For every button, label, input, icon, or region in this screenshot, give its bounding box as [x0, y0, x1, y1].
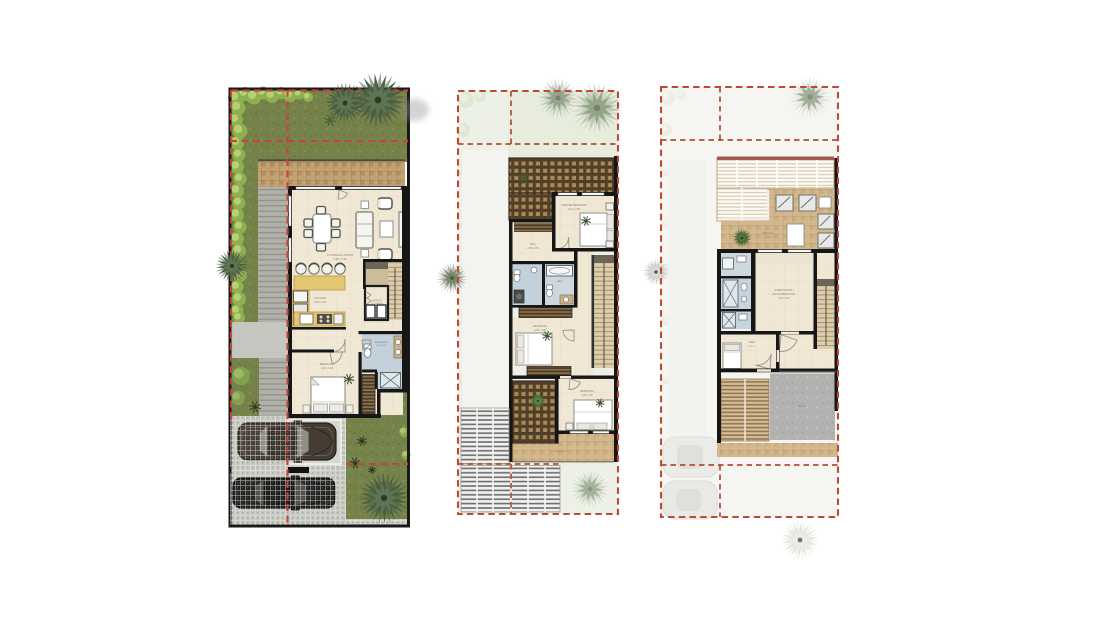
- svg-text:3.20 x 3.00: 3.20 x 3.00: [581, 395, 593, 397]
- svg-text:HALL: HALL: [530, 243, 537, 246]
- svg-text:BATHROOM: BATHROOM: [375, 341, 388, 344]
- svg-text:KITCHEN: KITCHEN: [314, 296, 326, 300]
- svg-text:4.05 x 2.30: 4.05 x 2.30: [763, 237, 775, 239]
- svg-text:TERRACE: TERRACE: [554, 450, 566, 453]
- svg-text:EXTRA BEDROOM: EXTRA BEDROOM: [773, 292, 796, 296]
- svg-text:LAWN: LAWN: [294, 128, 306, 133]
- svg-text:3.50 x 2.55: 3.50 x 2.55: [314, 301, 326, 304]
- svg-text:ROOF: ROOF: [798, 404, 807, 408]
- svg-text:BEDROOM: BEDROOM: [580, 389, 593, 393]
- svg-text:MASTER BEDROOM: MASTER BEDROOM: [562, 203, 587, 207]
- svg-text:BEDROOM: BEDROOM: [533, 324, 546, 328]
- svg-text:GAMES ROOM /: GAMES ROOM /: [774, 288, 794, 292]
- svg-text:5.90 x 4.55: 5.90 x 4.55: [334, 257, 347, 261]
- svg-text:5.05 x 4.10: 5.05 x 4.10: [778, 298, 790, 300]
- svg-text:LIV/DINING ROOM: LIV/DINING ROOM: [327, 253, 354, 257]
- svg-text:TERRACE: TERRACE: [762, 232, 774, 235]
- svg-text:4.15 x 3.20: 4.15 x 3.20: [321, 367, 333, 370]
- svg-text:3.10 x 3.95: 3.10 x 3.95: [568, 208, 580, 211]
- svg-text:BATH: BATH: [557, 280, 563, 283]
- svg-text:LAUNDRY: LAUNDRY: [372, 299, 383, 302]
- svg-text:2.45 x 2.35: 2.45 x 2.35: [527, 248, 539, 250]
- svg-text:1.55 x 2.50: 1.55 x 2.50: [376, 345, 387, 347]
